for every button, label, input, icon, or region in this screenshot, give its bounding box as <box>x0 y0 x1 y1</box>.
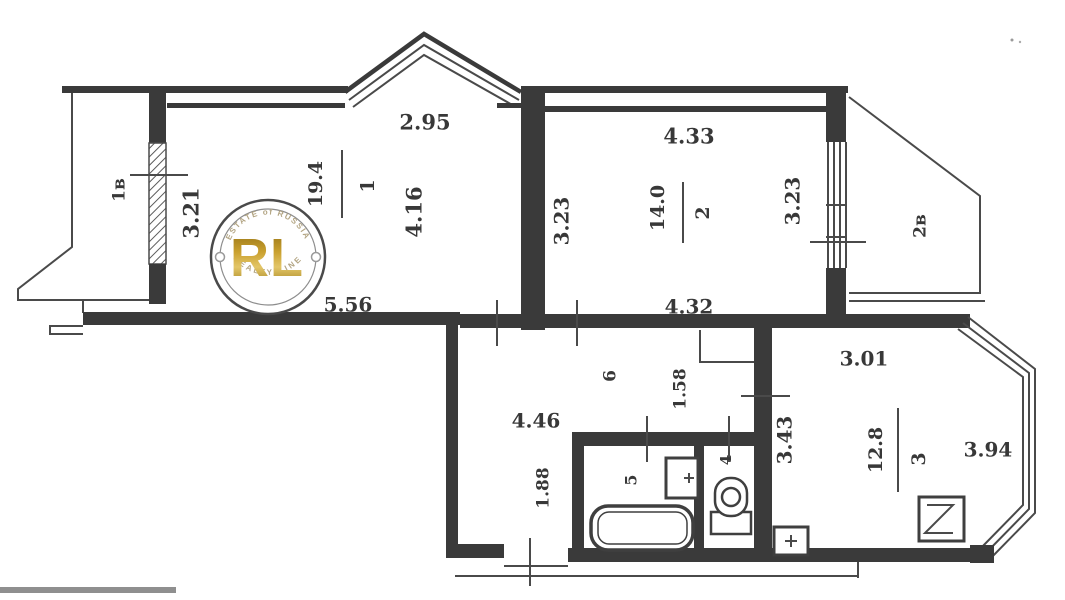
top-wall-left <box>62 86 348 93</box>
hall-top-wall <box>460 314 970 328</box>
peak-bay-glazing-2 <box>353 55 516 107</box>
bath-left-wall <box>572 432 584 554</box>
right-window-wall-upper <box>826 93 846 142</box>
scan-speck-1 <box>1011 39 1014 42</box>
dim-room3-left: 3.43 <box>773 416 797 465</box>
dim-hall-niche: 1.58 <box>671 368 691 409</box>
dim-hall-width: 4.46 <box>512 409 561 433</box>
balcony-left-window <box>149 143 166 264</box>
room1-room2-divider-wall <box>521 86 545 330</box>
room1-inner-top-stub <box>497 103 522 108</box>
dim-room2-left: 3.23 <box>550 197 574 246</box>
dim-hall-lower: 1.88 <box>534 467 554 508</box>
top-wall-right <box>521 86 848 93</box>
room1-inner-top-wall <box>167 103 345 108</box>
dim-room1-bay-width: 2.95 <box>399 110 450 135</box>
watermark-left-dot <box>216 253 225 262</box>
dim-room1-right: 4.16 <box>402 186 427 237</box>
hall-niche <box>700 330 762 362</box>
watermark-badge: ESTATE of RUSSIA REALTY LINE RL <box>211 200 325 314</box>
room3-number-label: 3 <box>908 452 930 465</box>
dim-room2-right: 3.23 <box>781 177 805 226</box>
room1-area-label: 19.4 <box>305 161 327 207</box>
balcony-right-window <box>826 142 846 268</box>
room2-area-label: 14.0 <box>647 185 669 231</box>
balcony-right-label: 2в <box>911 214 931 238</box>
dim-room1-left: 3.21 <box>179 187 204 238</box>
watermark-monogram: RL <box>230 228 304 288</box>
room1-number-label: 1 <box>357 179 379 192</box>
hall-room3-wall <box>754 322 772 552</box>
hall-number-label: 6 <box>601 370 621 382</box>
hall-left-wall <box>446 322 458 550</box>
wc-number-label: 4 <box>717 455 735 465</box>
bathtub-inner-line <box>598 512 687 544</box>
fixtures <box>591 458 964 555</box>
room2-number-label: 2 <box>692 206 714 219</box>
right-window-wall-lower <box>826 268 846 328</box>
dim-room1-bottom: 5.56 <box>324 293 373 317</box>
dim-room3-right: 3.94 <box>964 438 1013 462</box>
dim-room2-bottom: 4.32 <box>665 295 714 319</box>
floor-plan-page: 2.95 19.4 1 4.16 3.21 1в 5.56 4.33 3.23 … <box>0 0 1065 600</box>
dim-room3-top: 3.01 <box>840 347 889 371</box>
left-window-wall-lower <box>149 264 166 304</box>
scan-speck-2 <box>1019 41 1021 43</box>
watermark-right-dot <box>312 253 321 262</box>
bath-block-top-wall <box>572 432 770 446</box>
room2-inner-top-wall <box>545 106 826 112</box>
balcony-left-label: 1в <box>110 178 130 202</box>
room3-area-label: 12.8 <box>865 427 887 473</box>
floor-plan-image: 2.95 19.4 1 4.16 3.21 1в 5.56 4.33 3.23 … <box>0 0 1065 600</box>
hall-bottom-wall-left <box>446 544 504 558</box>
scan-artifact-bar <box>0 587 176 593</box>
dim-room2-top: 4.33 <box>663 124 714 149</box>
balcony-right-outline <box>849 97 980 293</box>
radiator-box <box>774 527 808 555</box>
left-window-wall-upper <box>149 93 166 143</box>
toilet <box>711 478 751 534</box>
bathroom-number-label: 5 <box>622 474 641 485</box>
sink <box>666 458 698 498</box>
walls <box>18 34 1035 586</box>
vent-shaft <box>919 497 964 541</box>
bottom-wall-step <box>50 326 83 334</box>
